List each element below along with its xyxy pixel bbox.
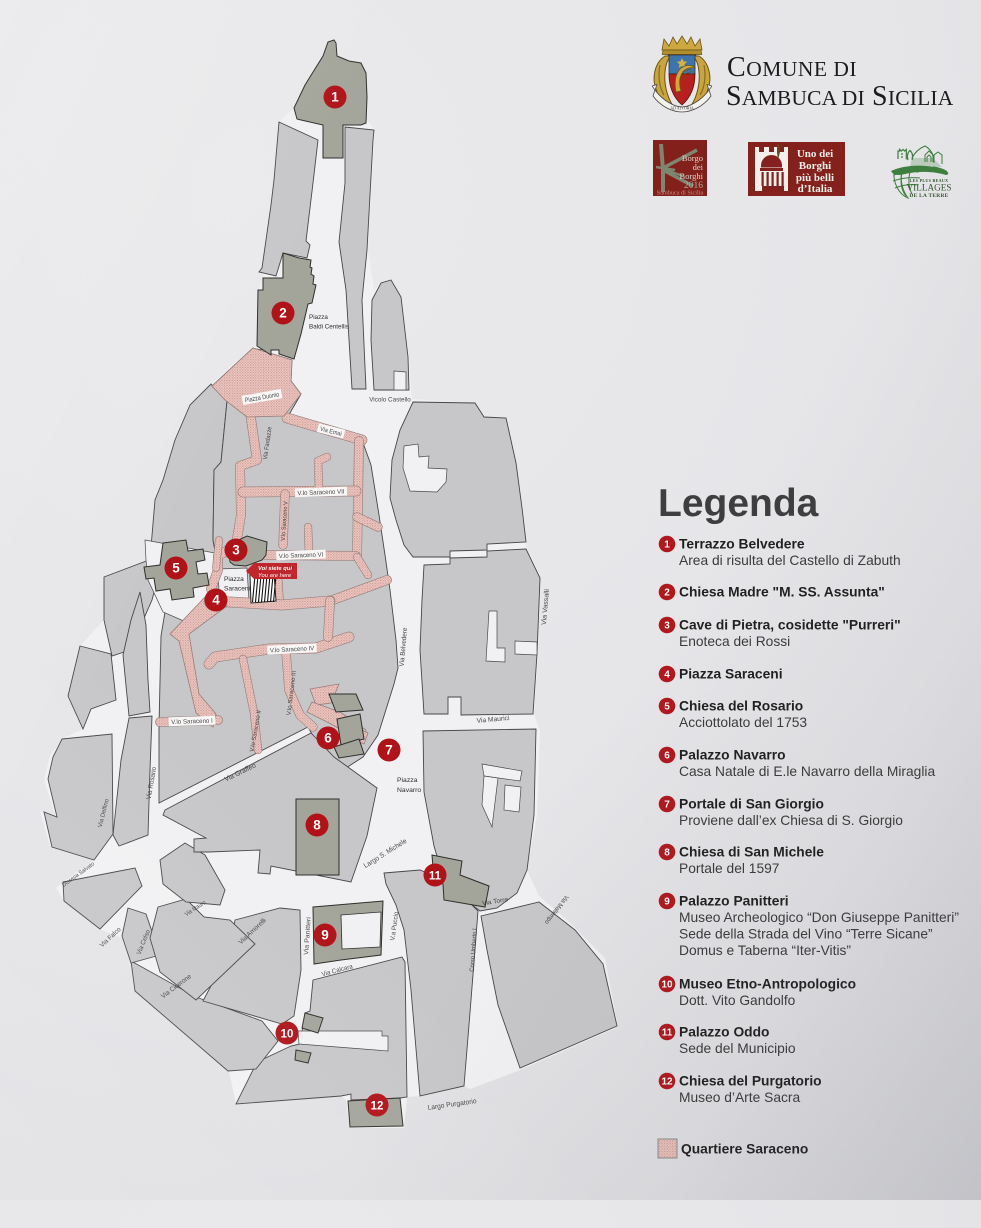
svg-text:Borghi: Borghi — [799, 160, 831, 172]
svg-text:Portale del 1597: Portale del 1597 — [679, 861, 780, 876]
svg-text:Piazza Saraceni: Piazza Saraceni — [679, 667, 783, 682]
svg-text:Sede della Strada del Vino “Te: Sede della Strada del Vino “Terre Sicane… — [679, 927, 933, 942]
svg-text:Cave di Pietra, cosidette "Pur: Cave di Pietra, cosidette "Purreri" — [679, 618, 901, 633]
svg-text:Via Vassalli: Via Vassalli — [541, 588, 551, 625]
svg-text:3: 3 — [232, 543, 240, 558]
svg-text:10: 10 — [281, 1029, 294, 1041]
svg-text:You are here: You are here — [258, 573, 292, 579]
svg-text:9: 9 — [321, 928, 329, 943]
svg-text:Palazzo Oddo: Palazzo Oddo — [679, 1025, 769, 1040]
svg-text:Chiesa di San Michele: Chiesa di San Michele — [679, 845, 824, 860]
svg-text:Museo Archeologico “Don Giusep: Museo Archeologico “Don Giuseppe Panitte… — [679, 910, 959, 925]
svg-text:4: 4 — [212, 593, 220, 608]
svg-text:12: 12 — [371, 1101, 384, 1113]
svg-text:Dott. Vito Gandolfo: Dott. Vito Gandolfo — [679, 993, 796, 1008]
svg-text:Uno dei: Uno dei — [797, 148, 833, 160]
svg-text:7: 7 — [664, 799, 670, 810]
svg-text:5: 5 — [172, 561, 180, 576]
svg-text:Sambuca di Sicilia: Sambuca di Sicilia — [657, 190, 704, 197]
svg-text:Proviene dall’ex Chiesa di S.: Proviene dall’ex Chiesa di S. Giorgio — [679, 813, 903, 828]
svg-text:Chiesa del Purgatorio: Chiesa del Purgatorio — [679, 1074, 822, 1089]
svg-text:5: 5 — [664, 701, 670, 712]
svg-text:Domus e Taberna “Iter-Vitis”: Domus e Taberna “Iter-Vitis” — [679, 943, 851, 958]
svg-text:Voi siete qui: Voi siete qui — [258, 566, 292, 572]
svg-text:9: 9 — [664, 896, 670, 907]
svg-text:10: 10 — [661, 979, 673, 990]
svg-text:d’Italia: d’Italia — [798, 183, 833, 195]
svg-text:6: 6 — [324, 731, 332, 746]
svg-text:Area di risulta del Castello d: Area di risulta del Castello di Zabuth — [679, 553, 901, 568]
svg-text:Enoteca dei Rossi: Enoteca dei Rossi — [679, 634, 790, 649]
svg-text:Piazza: Piazza — [224, 576, 244, 583]
svg-text:1: 1 — [331, 90, 339, 105]
svg-text:3: 3 — [664, 620, 670, 631]
svg-text:Museo d’Arte Sacra: Museo d’Arte Sacra — [679, 1090, 800, 1105]
svg-text:Quartiere Saraceno: Quartiere Saraceno — [681, 1142, 808, 1157]
svg-text:Casa Natale di E.le Navarro de: Casa Natale di E.le Navarro della Miragl… — [679, 764, 935, 779]
svg-text:Acciottolato del 1753: Acciottolato del 1753 — [679, 715, 807, 730]
svg-text:12: 12 — [661, 1076, 673, 1087]
svg-text:Piazza: Piazza — [397, 777, 418, 784]
svg-text:AD ATTORIA: AD ATTORIA — [670, 106, 694, 111]
svg-text:Saraceni: Saraceni — [224, 586, 251, 593]
svg-text:11: 11 — [662, 1027, 673, 1038]
svg-text:Largo Purgatorio: Largo Purgatorio — [427, 1098, 477, 1112]
svg-text:Piazza: Piazza — [309, 314, 328, 321]
svg-text:Chiesa Madre "M. SS. Assunta": Chiesa Madre "M. SS. Assunta" — [679, 585, 885, 600]
svg-text:Borghi: Borghi — [680, 171, 704, 181]
svg-text:Palazzo Panitteri: Palazzo Panitteri — [679, 894, 789, 909]
svg-text:V.lo Saraceno I: V.lo Saraceno I — [171, 718, 213, 726]
svg-text:Terrazzo Belvedere: Terrazzo Belvedere — [679, 537, 805, 552]
svg-text:Portale di San Giorgio: Portale di San Giorgio — [679, 797, 824, 812]
svg-text:DE LA TERRE: DE LA TERRE — [909, 193, 948, 199]
svg-text:8: 8 — [313, 818, 321, 833]
svg-text:Vicolo Castello: Vicolo Castello — [369, 396, 411, 403]
svg-text:2: 2 — [664, 587, 670, 598]
svg-text:Sede del Municipio: Sede del Municipio — [679, 1041, 796, 1056]
svg-text:2: 2 — [279, 306, 287, 321]
svg-text:VILLAGES: VILLAGES — [907, 183, 952, 193]
svg-text:8: 8 — [664, 847, 670, 858]
svg-text:Navarro: Navarro — [397, 787, 421, 794]
svg-text:4: 4 — [664, 669, 670, 680]
svg-text:Baldi Centellis: Baldi Centellis — [309, 323, 349, 330]
svg-text:7: 7 — [385, 743, 393, 758]
svg-text:Chiesa del Rosario: Chiesa del Rosario — [679, 699, 803, 714]
svg-text:6: 6 — [664, 750, 670, 761]
svg-text:11: 11 — [429, 871, 442, 883]
svg-text:Museo Etno-Antropologico: Museo Etno-Antropologico — [679, 977, 856, 992]
svg-text:Palazzo Navarro: Palazzo Navarro — [679, 748, 786, 763]
svg-text:1: 1 — [664, 539, 670, 550]
